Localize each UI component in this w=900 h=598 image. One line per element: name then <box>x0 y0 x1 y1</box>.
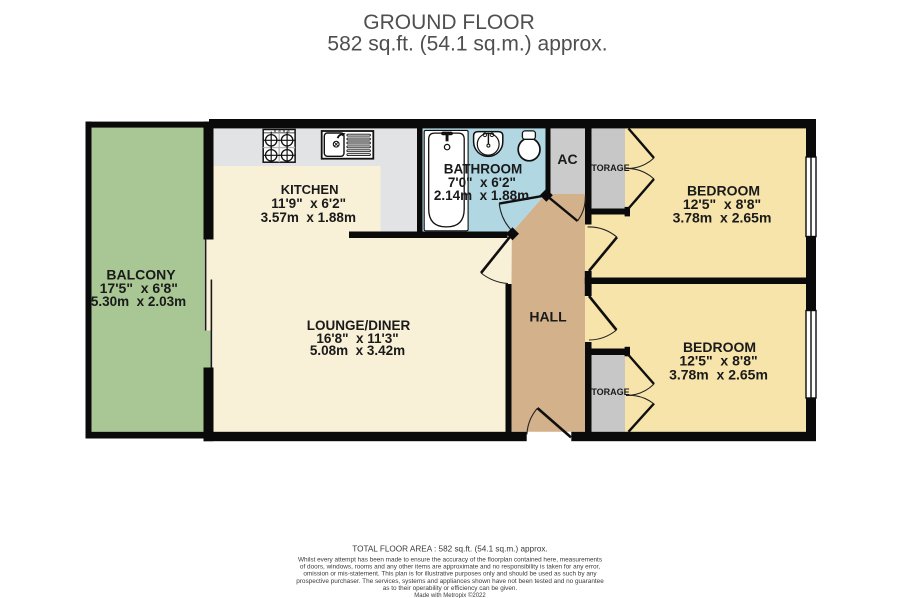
svg-text:11'9" x 6'2": 11'9" x 6'2" <box>271 196 346 211</box>
svg-text:3.78m x 2.65m: 3.78m x 2.65m <box>669 366 768 382</box>
svg-text:Whilst every attempt has been: Whilst every attempt has been made to en… <box>298 557 602 564</box>
svg-text:5.08m x 3.42m: 5.08m x 3.42m <box>310 343 405 358</box>
svg-text:omission or mis-statement. Thi: omission or mis-statement. This plan is … <box>303 571 597 578</box>
svg-text:STORAGE: STORAGE <box>585 163 629 173</box>
svg-text:Made with Metropix ©2022: Made with Metropix ©2022 <box>414 592 486 598</box>
svg-text:HALL: HALL <box>529 309 567 325</box>
svg-text:AC: AC <box>557 151 577 167</box>
svg-text:as to their operability or eff: as to their operability or efficiency ca… <box>383 585 518 592</box>
svg-text:582 sq.ft. (54.1 sq.m.) approx: 582 sq.ft. (54.1 sq.m.) approx. <box>327 32 607 55</box>
svg-text:5.30m x 2.03m: 5.30m x 2.03m <box>91 294 186 309</box>
svg-text:3.57m x 1.88m: 3.57m x 1.88m <box>261 210 356 225</box>
svg-text:TOTAL FLOOR AREA : 582 sq.ft.: TOTAL FLOOR AREA : 582 sq.ft. (54.1 sq.m… <box>352 544 548 553</box>
svg-text:STORAGE: STORAGE <box>585 387 629 397</box>
svg-text:GROUND FLOOR: GROUND FLOOR <box>363 11 535 34</box>
svg-text:3.78m x 2.65m: 3.78m x 2.65m <box>673 210 772 226</box>
svg-text:KITCHEN: KITCHEN <box>281 182 339 197</box>
svg-text:of doors, windows, rooms and a: of doors, windows, rooms and any other i… <box>300 564 600 571</box>
svg-text:2.14m x 1.88m: 2.14m x 1.88m <box>434 188 529 203</box>
svg-text:prospective purchaser. The ser: prospective purchaser. The services, sys… <box>296 578 604 585</box>
